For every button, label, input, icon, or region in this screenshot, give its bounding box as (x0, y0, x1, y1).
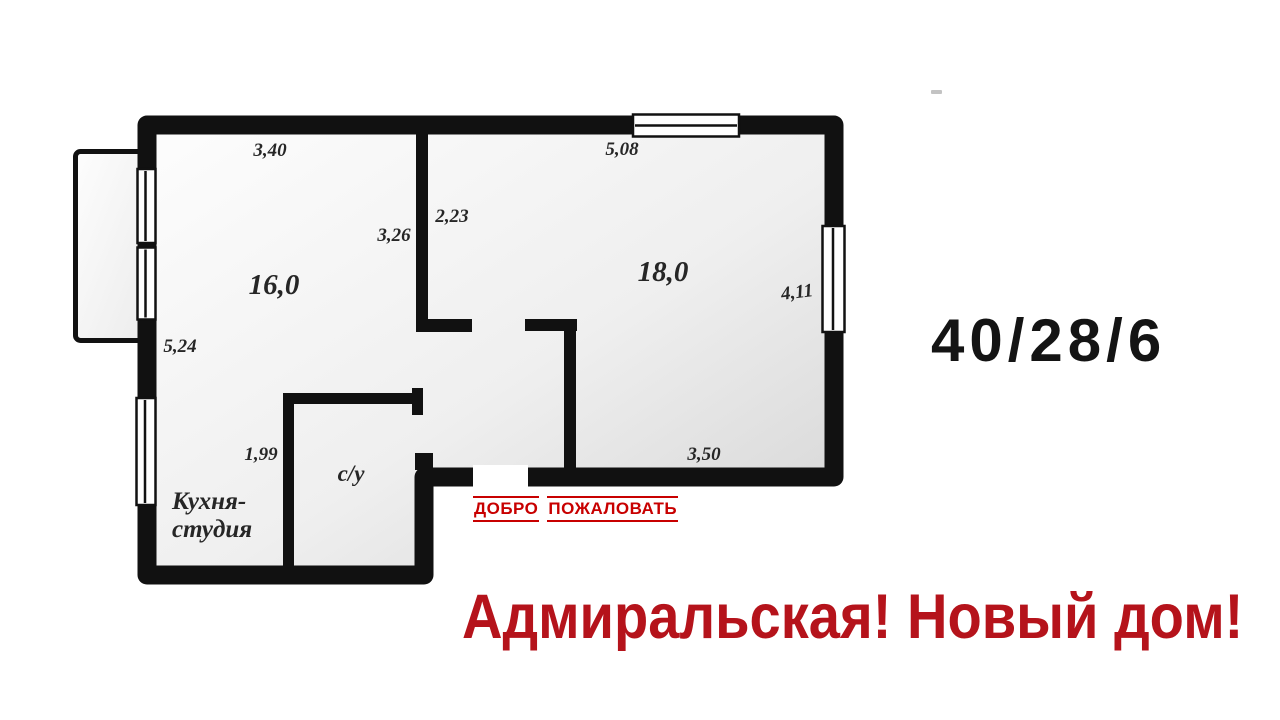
wall-hall-side (564, 319, 576, 471)
area-room2: 18,0 (638, 258, 689, 287)
window-left-upper (138, 169, 156, 243)
welcome-text: ДОБРОПОЖАЛОВАТЬ (473, 496, 678, 522)
wall-divider-endcap (416, 319, 472, 332)
entrance-opening (473, 465, 528, 490)
wall-bathroom-endcap (412, 388, 423, 415)
wall-room-divider (416, 127, 428, 332)
window-left-lower (137, 398, 156, 505)
room-label-kitchen-line1: Кухня- (172, 488, 252, 516)
room-label-kitchen: Кухня- студия (172, 488, 252, 543)
room-label-bathroom: с/у (338, 462, 365, 485)
area-room1: 16,0 (249, 271, 300, 300)
dimension-room2-top: 5,08 (605, 140, 638, 159)
dimension-hall-width: 2,23 (435, 207, 468, 226)
spec-ratio: 40/28/6 (931, 317, 1166, 365)
welcome-word-2: ПОЖАЛОВАТЬ (547, 496, 678, 522)
dimension-left-wall: 5,24 (163, 337, 196, 356)
artifact-dash (931, 90, 942, 94)
dimension-room1-wall: 3,26 (377, 226, 410, 245)
dimension-room2-bottom: 3,50 (687, 445, 720, 464)
wall-junction-tip (415, 453, 433, 470)
dimension-room1-top: 3,40 (253, 141, 286, 160)
wall-bathroom-left (283, 393, 294, 575)
window-left-middle (138, 248, 156, 320)
page: 3,40 5,08 2,23 3,26 16,0 18,0 4,11 5,24 … (0, 0, 1280, 720)
wall-bathroom-top (285, 393, 422, 404)
room-label-kitchen-line2: студия (172, 516, 252, 544)
dimension-kitchen-width: 1,99 (244, 445, 277, 464)
welcome-word-1: ДОБРО (473, 496, 539, 522)
dimension-right-wall: 4,11 (780, 281, 814, 304)
window-right (823, 226, 845, 332)
tagline: Адмиральская! Новый дом! (462, 589, 1243, 646)
window-top (633, 115, 739, 137)
